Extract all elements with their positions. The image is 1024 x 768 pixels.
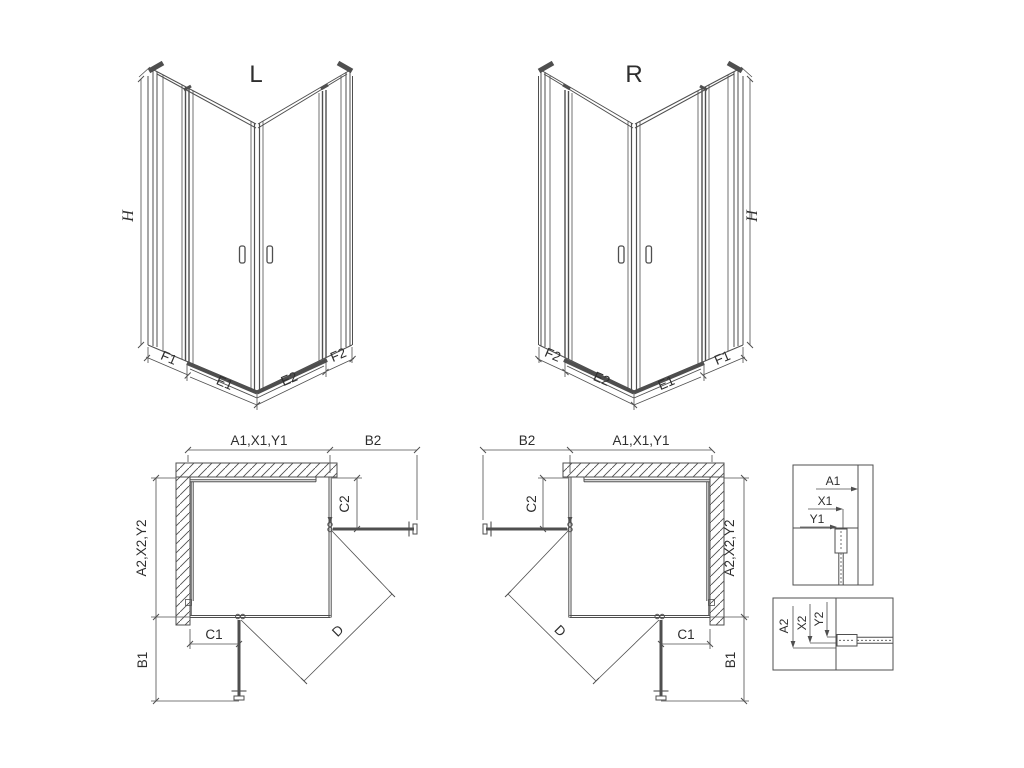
wall-hatch-top-right	[563, 463, 724, 477]
shower-enclosure-technical-drawing: L H F1 E1 E2 F2 R H F2 E2 E1 F1 A1,X1,Y1…	[0, 0, 1024, 768]
plan-right-b2-label: B2	[519, 433, 536, 448]
plan-right-width-label: A1,X1,Y1	[612, 433, 669, 448]
iso-view-left: L H F1 E1 E2 F2	[120, 61, 356, 410]
plan-right-depth-label: A2,X2,Y2	[722, 519, 737, 576]
detail-top-y1-label: Y1	[810, 512, 825, 526]
plan-view-right: B2 A1,X1,Y1 C2 A2,X2,Y2 B1 C1 D	[480, 433, 749, 704]
plan-left-b2-label: B2	[365, 433, 382, 448]
iso-left-height-label: H	[120, 209, 137, 223]
plan-left-c1-label: C1	[205, 627, 222, 642]
plan-right-c2-label: C2	[524, 495, 539, 512]
detail-bottom-a2-label: A2	[777, 618, 791, 633]
iso-left-title: L	[249, 61, 262, 88]
plan-right-diagonal-label: D	[551, 622, 569, 640]
iso-view-right: R H F2 E2 E1 F1	[535, 61, 761, 410]
detail-box-profile-top: A1 X1 Y1	[793, 465, 873, 585]
detail-top-a1-label: A1	[826, 474, 841, 488]
plan-left-width-label: A1,X1,Y1	[230, 433, 287, 448]
plan-right-c1-label: C1	[677, 627, 694, 642]
wall-hatch-top	[176, 463, 337, 477]
technical-drawing-canvas: L H F1 E1 E2 F2 R H F2 E2 E1 F1 A1,X1,Y1…	[0, 0, 1024, 768]
plan-left-diagonal-label: D	[329, 622, 347, 640]
plan-left-b1-label: B1	[135, 652, 150, 669]
plan-right-b1-label: B1	[723, 652, 738, 669]
plan-left-depth-label: A2,X2,Y2	[134, 519, 149, 576]
detail-box-profile-bottom: A2 X2 Y2	[773, 598, 893, 670]
detail-bottom-y2-label: Y2	[812, 611, 826, 626]
iso-right-height-label: H	[744, 209, 761, 223]
plan-left-c2-label: C2	[337, 495, 352, 512]
iso-right-title: R	[625, 61, 642, 88]
plan-view-left: A1,X1,Y1 B2 C2 A2,X2,Y2 B1 C1 D	[134, 433, 420, 704]
detail-bottom-x2-label: X2	[795, 615, 809, 630]
detail-top-x1-label: X1	[818, 494, 833, 508]
wall-hatch-left	[176, 477, 190, 625]
